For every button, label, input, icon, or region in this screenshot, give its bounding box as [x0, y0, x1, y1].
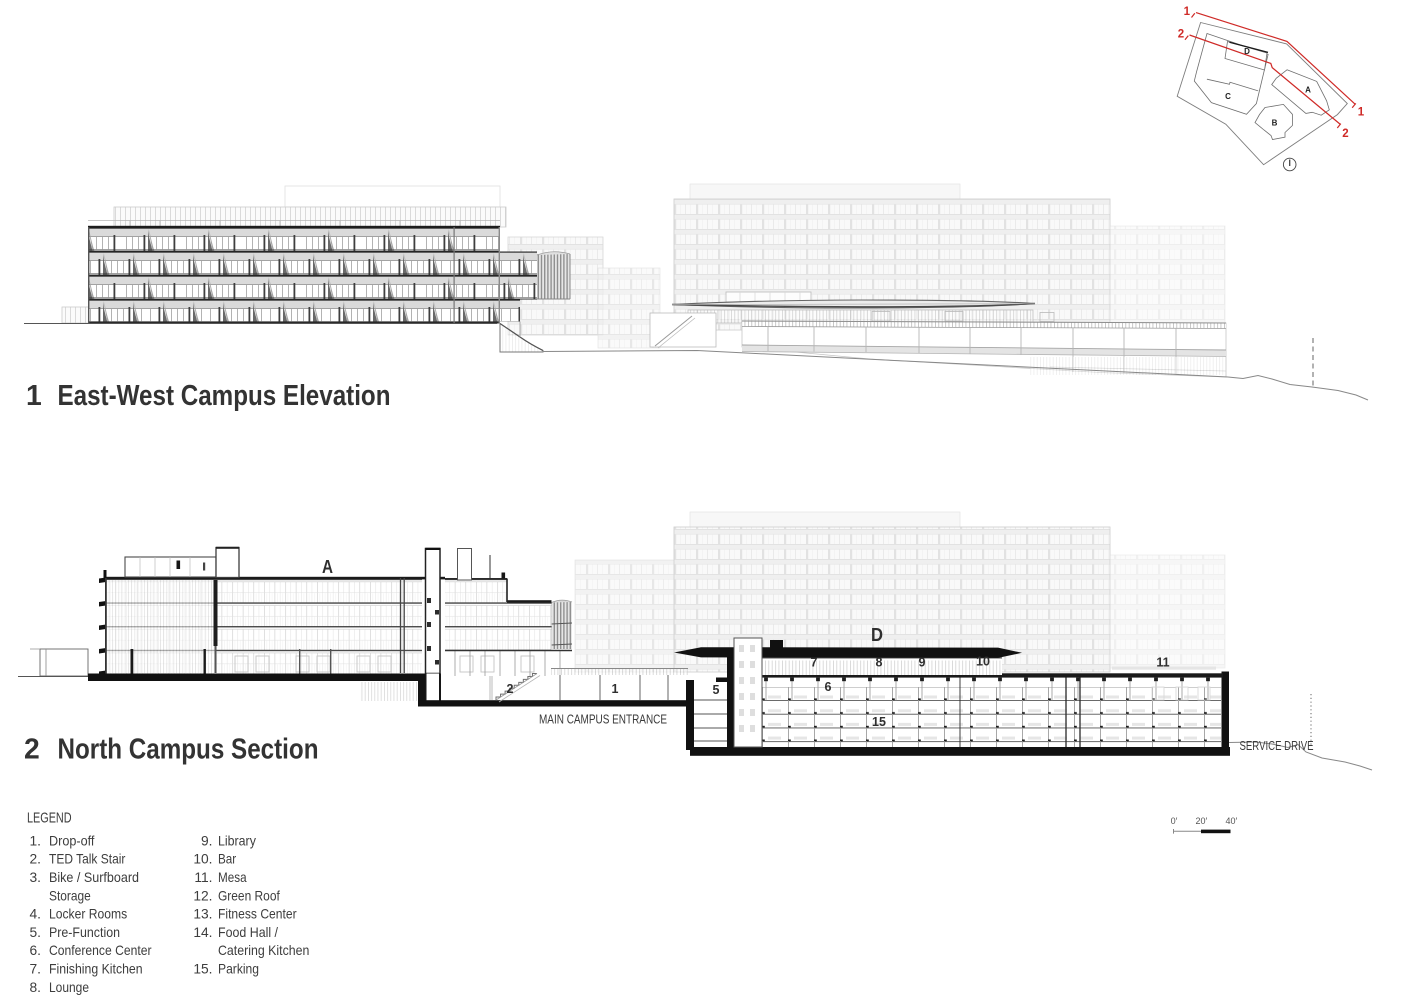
svg-text:MAIN CAMPUS ENTRANCE: MAIN CAMPUS ENTRANCE: [539, 713, 667, 727]
svg-text:2: 2: [1178, 29, 1184, 41]
svg-text:4.: 4.: [29, 907, 41, 922]
svg-text:Lounge: Lounge: [49, 980, 89, 995]
svg-text:Fitness Center: Fitness Center: [218, 907, 297, 922]
svg-text:1: 1: [26, 379, 42, 411]
svg-text:B: B: [1272, 119, 1278, 128]
svg-text:7: 7: [811, 656, 818, 670]
svg-text:11.: 11.: [194, 870, 212, 885]
svg-text:Green Roof: Green Roof: [218, 888, 280, 903]
svg-text:Library: Library: [218, 833, 256, 848]
svg-text:20′: 20′: [1195, 816, 1207, 826]
svg-text:Catering Kitchen: Catering Kitchen: [218, 943, 309, 958]
svg-text:Locker Rooms: Locker Rooms: [49, 907, 127, 922]
svg-text:40′: 40′: [1225, 816, 1237, 826]
svg-text:7.: 7.: [29, 962, 41, 977]
svg-text:TED Talk Stair: TED Talk Stair: [49, 852, 126, 867]
svg-text:Drop-off: Drop-off: [49, 833, 95, 848]
svg-text:14.: 14.: [193, 925, 212, 940]
svg-text:11: 11: [1156, 656, 1169, 670]
svg-text:9: 9: [919, 656, 926, 670]
svg-text:Mesa: Mesa: [218, 870, 247, 885]
svg-text:Conference Center: Conference Center: [49, 943, 152, 958]
svg-text:Bar: Bar: [218, 852, 237, 867]
svg-text:3.: 3.: [29, 870, 41, 885]
svg-text:LEGEND: LEGEND: [27, 809, 72, 826]
svg-text:8.: 8.: [29, 980, 41, 995]
svg-text:North Campus Section: North Campus Section: [58, 732, 319, 764]
svg-text:2: 2: [507, 682, 514, 696]
svg-text:13.: 13.: [193, 907, 212, 922]
svg-text:12.: 12.: [193, 888, 212, 903]
svg-text:8: 8: [876, 656, 883, 670]
svg-text:15: 15: [872, 715, 886, 729]
svg-text:5: 5: [713, 683, 720, 697]
svg-text:2.: 2.: [29, 852, 41, 867]
svg-text:0′: 0′: [1171, 816, 1178, 826]
svg-text:2: 2: [24, 732, 40, 764]
svg-text:Storage: Storage: [49, 888, 91, 903]
svg-text:East-West Campus Elevation: East-West Campus Elevation: [58, 379, 391, 411]
svg-text:Bike / Surfboard: Bike / Surfboard: [49, 870, 139, 885]
svg-text:Food Hall /: Food Hall /: [218, 925, 278, 940]
svg-text:6: 6: [825, 680, 832, 694]
svg-text:SERVICE DRIVE: SERVICE DRIVE: [1240, 739, 1314, 753]
svg-text:1: 1: [612, 682, 619, 696]
svg-text:1: 1: [1358, 107, 1365, 119]
svg-text:2: 2: [1342, 128, 1348, 140]
svg-text:5.: 5.: [29, 925, 41, 940]
svg-text:Pre-Function: Pre-Function: [49, 925, 120, 940]
svg-text:Parking: Parking: [218, 962, 259, 977]
svg-text:10.: 10.: [193, 852, 212, 867]
svg-text:15.: 15.: [193, 962, 212, 977]
svg-text:6.: 6.: [29, 943, 41, 958]
svg-text:D: D: [871, 625, 883, 645]
svg-text:1.: 1.: [29, 833, 41, 848]
svg-text:C: C: [1225, 92, 1231, 101]
svg-text:9.: 9.: [201, 833, 213, 848]
svg-text:10: 10: [976, 655, 990, 669]
svg-text:Finishing Kitchen: Finishing Kitchen: [49, 962, 143, 977]
svg-text:A: A: [1305, 86, 1311, 95]
svg-text:A: A: [322, 557, 333, 577]
svg-text:1: 1: [1184, 6, 1191, 18]
